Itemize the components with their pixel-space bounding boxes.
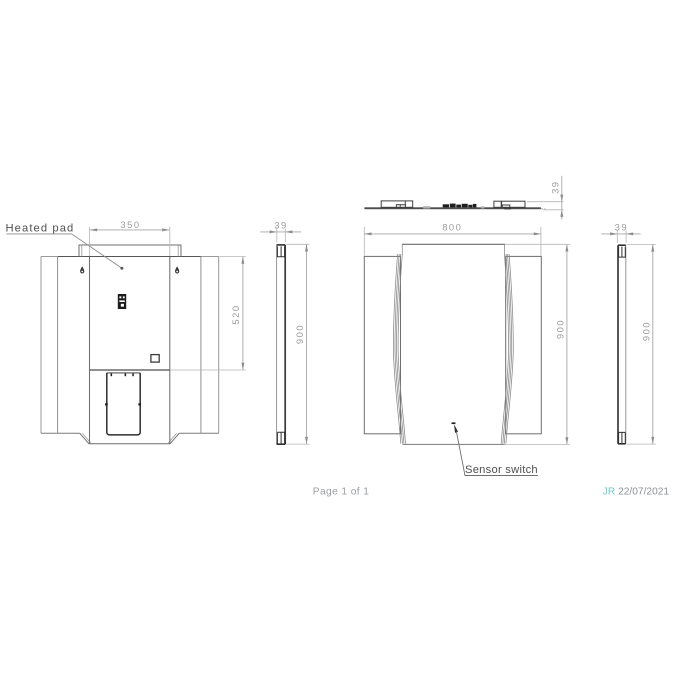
svg-text:900: 900	[294, 324, 305, 344]
svg-text:350: 350	[120, 219, 140, 230]
svg-text:39: 39	[274, 220, 287, 231]
svg-text:Sensor switch: Sensor switch	[465, 464, 538, 476]
svg-text:Heated pad: Heated pad	[6, 222, 75, 234]
svg-text:900: 900	[641, 321, 652, 341]
svg-text:520: 520	[230, 304, 241, 324]
svg-text:800: 800	[442, 221, 462, 232]
svg-text:JR 22/07/2021: JR 22/07/2021	[603, 487, 670, 498]
svg-text:Page 1 of 1: Page 1 of 1	[313, 487, 370, 498]
svg-text:900: 900	[554, 319, 565, 339]
svg-text:39: 39	[549, 180, 560, 193]
